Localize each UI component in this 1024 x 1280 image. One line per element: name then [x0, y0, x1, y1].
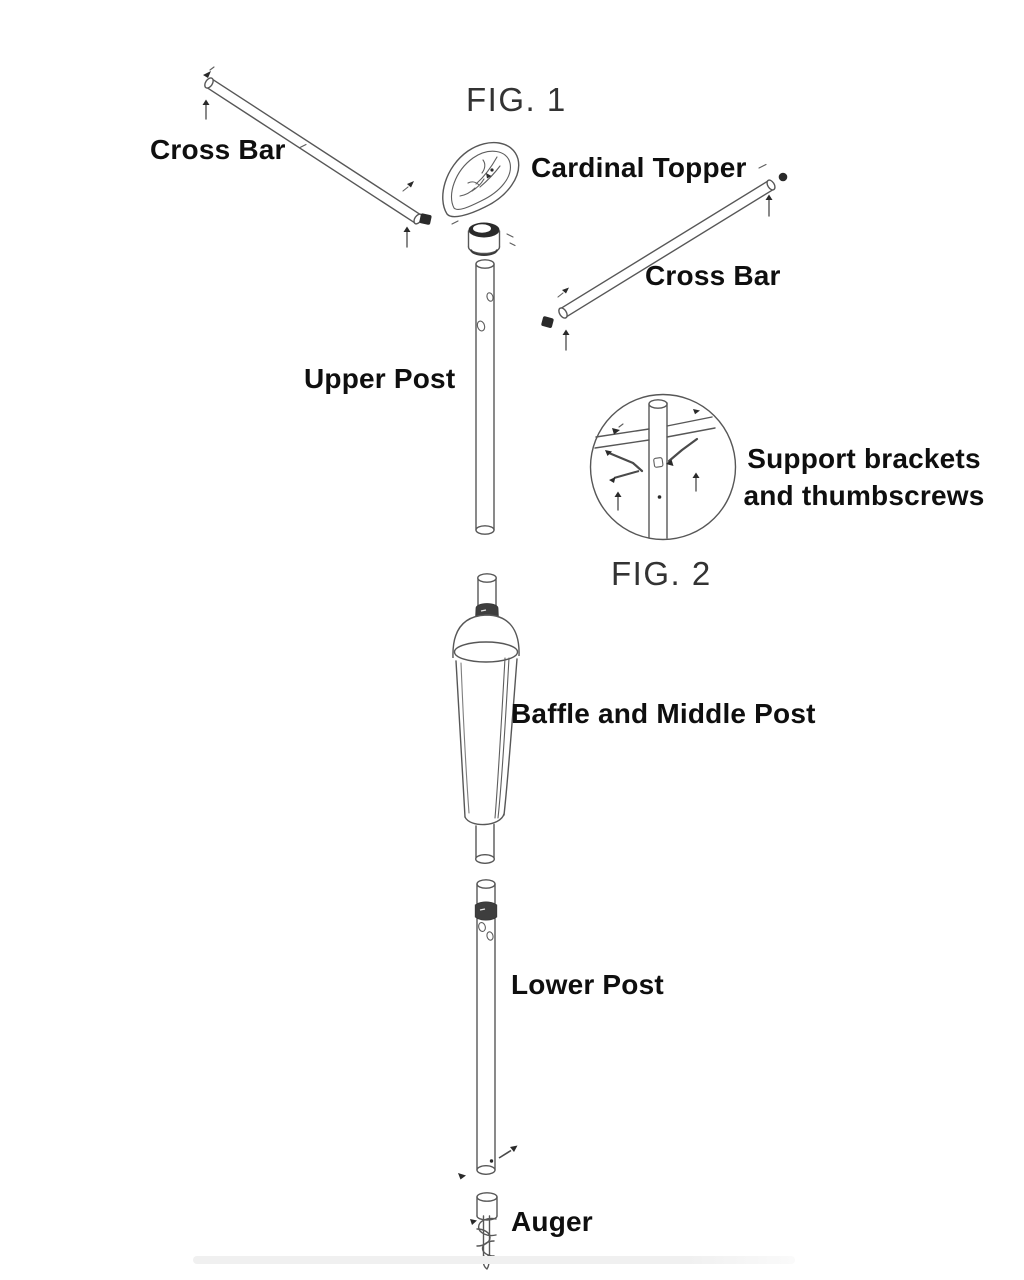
- support-bracket-right: [669, 439, 697, 461]
- screw-icon: [499, 1151, 511, 1159]
- screw-icon: [203, 71, 211, 78]
- label-support-brackets: Support brackets and thumbscrews: [730, 441, 998, 515]
- label-baffle-middle-post: Baffle and Middle Post: [511, 698, 816, 730]
- topper-mounting-cap-drawing: [452, 221, 515, 255]
- label-cross-bar-right: Cross Bar: [645, 260, 781, 292]
- label-lower-post: Lower Post: [511, 969, 664, 1001]
- cross-bar-right-drawing: [541, 165, 787, 351]
- nut-icon: [419, 213, 432, 225]
- screw-icon: [458, 1173, 466, 1180]
- fig1-label: FIG. 1: [466, 83, 567, 118]
- lower-post-drawing: [458, 880, 518, 1180]
- fig2-detail-circle: [591, 395, 736, 540]
- assembly-diagram-page: FIG. 1 Cross Bar Cardinal Topper Cross B…: [0, 0, 1024, 1280]
- label-upper-post: Upper Post: [304, 363, 455, 395]
- footer-divider-bar: [193, 1256, 795, 1264]
- support-bracket-left: [609, 453, 642, 471]
- label-cardinal-topper: Cardinal Topper: [531, 152, 747, 184]
- nut-icon: [541, 316, 554, 329]
- label-support-brackets-line2: and thumbscrews: [730, 478, 998, 515]
- label-support-brackets-line1: Support brackets: [730, 441, 998, 478]
- nut-icon: [779, 173, 788, 182]
- assembly-diagram-art: [0, 0, 1024, 1280]
- baffle-and-middle-post-drawing: [453, 574, 519, 864]
- label-auger: Auger: [511, 1206, 593, 1238]
- fig2-label: FIG. 2: [611, 557, 712, 592]
- cardinal-topper-drawing: [443, 143, 519, 217]
- screw-icon: [693, 409, 700, 414]
- upper-post-drawing: [476, 260, 494, 534]
- thumbscrew-icon: [614, 471, 639, 478]
- label-cross-bar-left: Cross Bar: [150, 134, 286, 166]
